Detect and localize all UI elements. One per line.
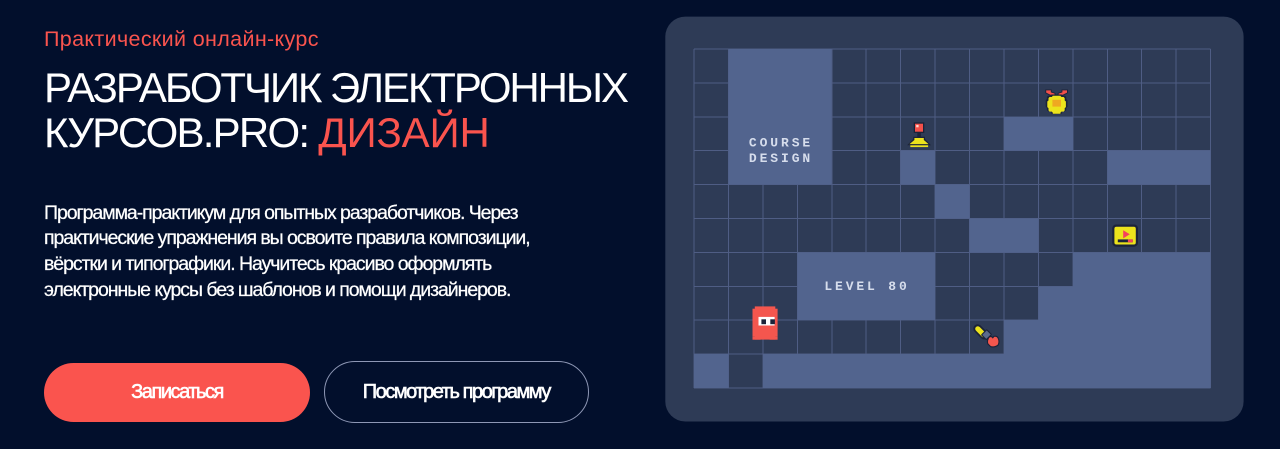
svg-text:LEVEL 80: LEVEL 80 bbox=[824, 279, 909, 294]
svg-text:COURSE: COURSE bbox=[749, 136, 813, 151]
svg-text:DESIGN: DESIGN bbox=[749, 151, 813, 166]
